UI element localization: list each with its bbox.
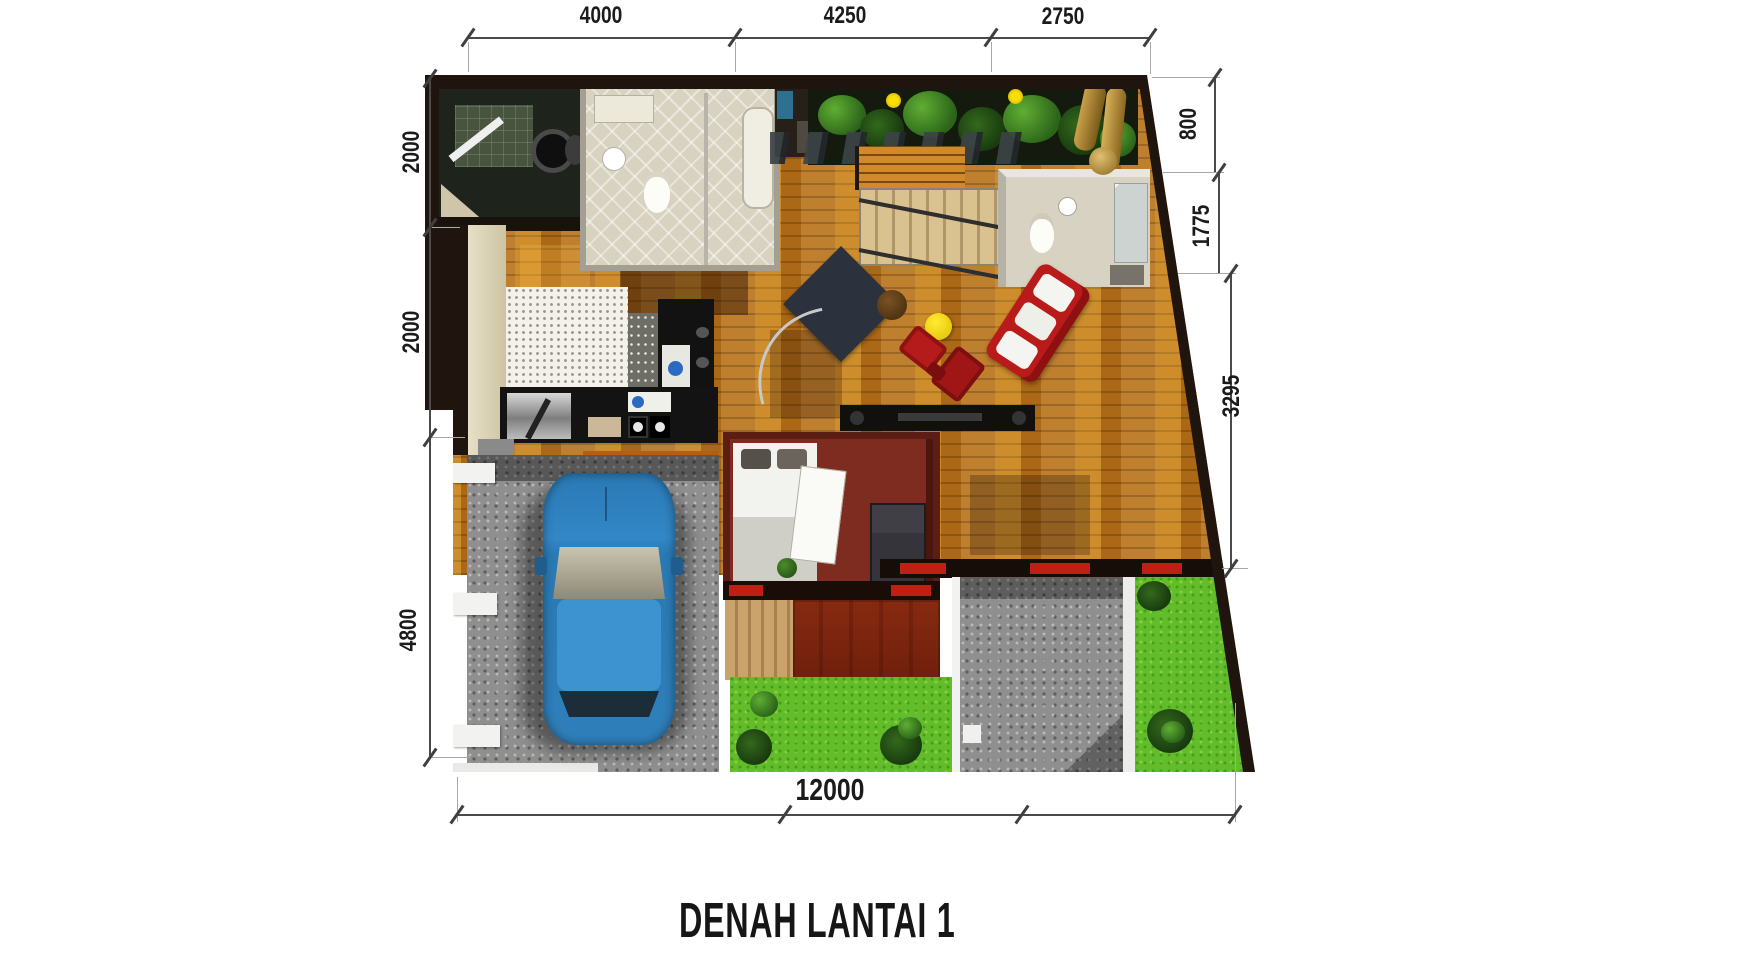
dim-ext (432, 437, 465, 438)
stove-dial (632, 396, 644, 408)
flower (886, 93, 901, 108)
plant (903, 91, 957, 137)
drawer-unit (588, 417, 621, 437)
car-mirror (671, 557, 683, 575)
stairs-lower (859, 188, 1007, 266)
plant (898, 717, 922, 739)
bathroom-2 (580, 83, 780, 271)
fridge-handle (525, 398, 551, 440)
plant (818, 95, 866, 135)
facade-accent (1030, 563, 1090, 574)
dimension-line-left (429, 78, 431, 757)
deck (725, 600, 793, 680)
dim-ext (432, 227, 460, 228)
dim-label-right-1: 800 (1176, 76, 1202, 172)
path-fence (1123, 577, 1135, 772)
fountain-basin (1089, 147, 1117, 175)
facade-accent (1142, 563, 1182, 574)
facade-accent (900, 563, 946, 574)
facade-band (880, 559, 1230, 578)
bathroom-3 (998, 169, 1150, 287)
dim-label-left-3: 4800 (396, 582, 422, 678)
dim-label-top-3: 2750 (1015, 4, 1111, 30)
path-fence (952, 577, 960, 772)
dim-label-left-2: 2000 (399, 284, 425, 380)
cabinet (1110, 265, 1144, 285)
dim-label-right-2: 1775 (1189, 178, 1215, 274)
burner-ring (633, 422, 643, 432)
dimension-line-top (468, 37, 1150, 39)
lawn-left (730, 677, 953, 772)
floor-plan-page: 4000 4250 2750 2000 2000 4800 800 1775 3… (0, 0, 1740, 979)
bathroom-1-tiles (455, 105, 533, 167)
deck-steps (793, 600, 940, 680)
wardrobe (870, 503, 926, 593)
shower-wall (704, 93, 708, 265)
dim-ext (991, 42, 992, 72)
plant (777, 558, 797, 578)
carport-pillar (453, 593, 497, 615)
vanity (594, 95, 654, 123)
dim-ext (1222, 568, 1248, 569)
dim-ext (735, 42, 736, 72)
facade-accent (891, 585, 931, 596)
kitchen-floor (506, 287, 628, 387)
dim-ext (432, 757, 470, 758)
outer-wall-left (425, 75, 439, 412)
flower (1008, 89, 1023, 104)
stairs-upper (855, 146, 965, 190)
carport-pillar (453, 463, 495, 483)
speaker (850, 411, 864, 425)
paver-stone (963, 725, 981, 743)
sink-basin (668, 361, 683, 376)
kitchen-counter-right (658, 299, 714, 391)
facade-band (723, 581, 940, 600)
path-shadow (1065, 715, 1123, 772)
floor-plan (425, 75, 1255, 772)
dim-label-top-1: 4000 (553, 3, 649, 29)
car-windshield (553, 547, 665, 599)
dimension-line-right-1 (1214, 77, 1216, 172)
car (543, 473, 675, 745)
toilet (1030, 219, 1054, 253)
tv-console (840, 405, 1035, 431)
burner (696, 327, 709, 338)
dim-label-top-2: 4250 (797, 3, 893, 29)
dim-ext (1235, 703, 1236, 822)
parquet-shade (970, 475, 1090, 555)
facade-accent (729, 585, 763, 596)
tv (898, 413, 982, 421)
dim-ext (1163, 172, 1224, 173)
page-title: DENAH LANTAI 1 (679, 893, 877, 949)
burner (696, 357, 709, 368)
curb (453, 763, 598, 772)
fridge (507, 393, 571, 439)
kitchen-floor-dark (628, 313, 658, 389)
car-hood-line (605, 487, 607, 521)
dimension-line-right-2 (1218, 172, 1220, 273)
pillow (741, 449, 771, 469)
stair-railing (859, 198, 1007, 231)
car-mirror (535, 557, 547, 575)
glass-panel (777, 91, 793, 119)
car-roof (557, 599, 661, 691)
dim-label-left-1: 2000 (399, 104, 425, 200)
car-rear-window (559, 691, 659, 717)
kitchen-side-wall (439, 225, 468, 455)
speaker (1012, 411, 1026, 425)
garden-path (960, 577, 1123, 772)
plant (1161, 721, 1185, 743)
bathroom-1 (439, 89, 586, 231)
kitchen-counter-bottom (500, 387, 718, 443)
dim-ext (468, 42, 469, 72)
dimension-line-bottom (457, 814, 1236, 816)
carport-pillar (453, 725, 500, 747)
bedroom-door (789, 466, 846, 565)
plant (750, 691, 778, 717)
shower-glass (1114, 183, 1148, 263)
bamboo-fountain (1075, 81, 1145, 176)
outer-wall-top (425, 75, 1147, 89)
dim-label-right-3: 3295 (1219, 348, 1245, 444)
stove (628, 392, 671, 412)
plant (1137, 581, 1171, 611)
sink (602, 147, 626, 171)
toilet (644, 177, 670, 213)
sink (1058, 197, 1077, 216)
dim-label-bottom-1: 12000 (782, 777, 878, 803)
dim-ext (1150, 42, 1151, 74)
path-shadow (960, 577, 1123, 599)
burner-ring (655, 422, 665, 432)
plant (736, 729, 772, 765)
